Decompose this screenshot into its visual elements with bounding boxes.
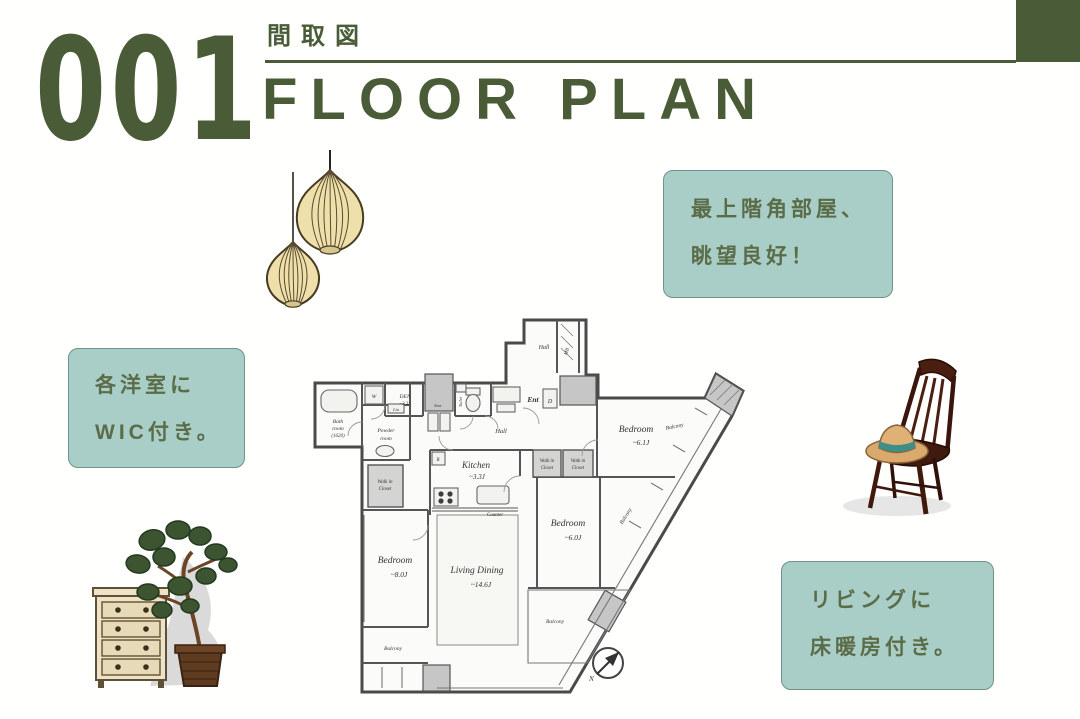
svg-text:Balcony: Balcony <box>384 646 403 652</box>
callout-line: リビングに <box>810 577 993 624</box>
callout-line: WIC付き。 <box>95 409 244 456</box>
svg-text:Ent: Ent <box>526 395 539 404</box>
pendant-lamps-illustration <box>253 150 388 312</box>
potted-plant <box>124 521 237 686</box>
svg-text:Kitchen: Kitchen <box>461 460 490 470</box>
svg-text:~6.1J: ~6.1J <box>633 438 650 447</box>
small-pendant-lamp <box>267 172 319 307</box>
svg-text:W: W <box>372 394 377 400</box>
svg-text:Closet: Closet <box>541 466 554 471</box>
svg-text:Bath: Bath <box>333 419 344 425</box>
svg-text:R: R <box>435 458 439 463</box>
plant-shadow <box>150 557 221 686</box>
header-divider-line <box>265 60 1016 63</box>
svg-text:Bedroom: Bedroom <box>619 425 654 435</box>
dresser <box>93 588 169 688</box>
callout-left: 各洋室に WIC付き。 <box>68 348 245 468</box>
corner-accent-square <box>1016 0 1080 62</box>
svg-text:Counter: Counter <box>487 513 503 518</box>
svg-text:Living Dining: Living Dining <box>449 566 503 576</box>
svg-text:~3.3J: ~3.3J <box>399 402 411 407</box>
svg-text:DEN: DEN <box>399 394 411 400</box>
svg-text:Bedroom: Bedroom <box>551 519 586 529</box>
svg-text:room: room <box>380 436 391 442</box>
callout-line: 床暖房付き。 <box>810 624 993 671</box>
svg-text:~8.0J: ~8.0J <box>391 570 408 579</box>
svg-text:Bedroom: Bedroom <box>378 556 413 566</box>
svg-text:Walk in: Walk in <box>378 480 393 485</box>
page-title: FLOOR PLAN <box>262 66 769 133</box>
svg-text:room: room <box>332 426 343 432</box>
straw-hat <box>866 425 928 463</box>
svg-text:Hall: Hall <box>494 428 507 435</box>
callout-line: 各洋室に <box>95 362 244 409</box>
subtitle-japanese: 間取図 <box>267 16 369 51</box>
floor-plan-page: { "colors": { "accent_green": "#4a5c37",… <box>0 0 1080 719</box>
svg-text:Hall: Hall <box>538 345 550 351</box>
svg-text:Closet: Closet <box>572 466 585 471</box>
svg-text:~3.3J: ~3.3J <box>469 473 486 481</box>
svg-text:~14.6J: ~14.6J <box>471 580 492 589</box>
plant-and-dresser-illustration <box>88 502 238 690</box>
floor-plan-drawing: N Bath room (1620) W Lin DEN ~3.3J Stor … <box>305 310 753 700</box>
callout-line: 眺望良好！ <box>691 233 892 280</box>
callout-top-right: 最上階角部屋、 眺望良好！ <box>663 170 893 298</box>
svg-text:Balcony: Balcony <box>546 619 565 625</box>
svg-text:(1620): (1620) <box>331 434 345 439</box>
callout-line: 最上階角部屋、 <box>691 186 892 233</box>
svg-text:Closet: Closet <box>379 487 392 492</box>
svg-text:Walk in: Walk in <box>540 459 555 464</box>
svg-text:Walk in: Walk in <box>571 459 586 464</box>
callout-bottom-right: リビングに 床暖房付き。 <box>781 561 994 690</box>
svg-text:~6.0J: ~6.0J <box>565 533 582 542</box>
svg-text:D: D <box>547 399 553 405</box>
large-pendant-lamp <box>297 150 363 254</box>
chair-shadow <box>843 496 951 516</box>
svg-text:Lin: Lin <box>392 407 400 412</box>
svg-text:Toilet: Toilet <box>458 396 463 407</box>
chair-with-straw-hat-illustration <box>835 348 975 520</box>
chair <box>870 359 956 514</box>
svg-text:Stor: Stor <box>434 403 442 408</box>
svg-text:N: N <box>588 675 594 683</box>
svg-text:Powder: Powder <box>376 428 395 434</box>
page-number: 001 <box>35 20 261 162</box>
